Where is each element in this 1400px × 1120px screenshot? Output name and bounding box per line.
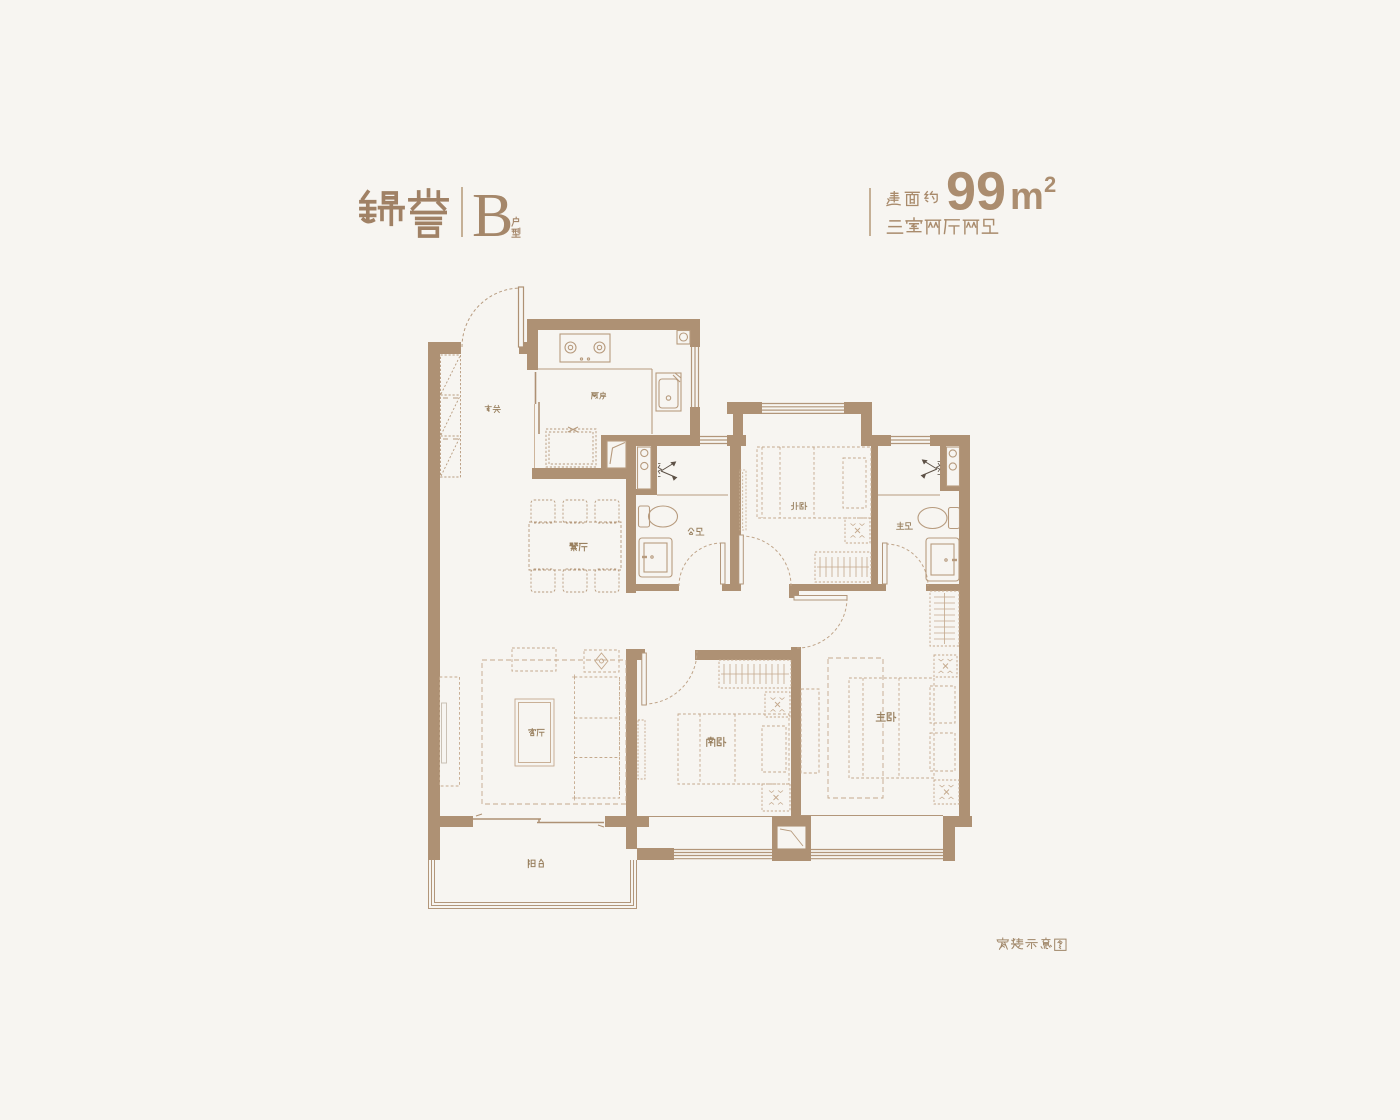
svg-text:2: 2 [1044, 172, 1056, 197]
svg-text:m: m [1010, 176, 1044, 218]
svg-text:B: B [472, 182, 513, 250]
svg-text:99: 99 [946, 162, 1006, 222]
